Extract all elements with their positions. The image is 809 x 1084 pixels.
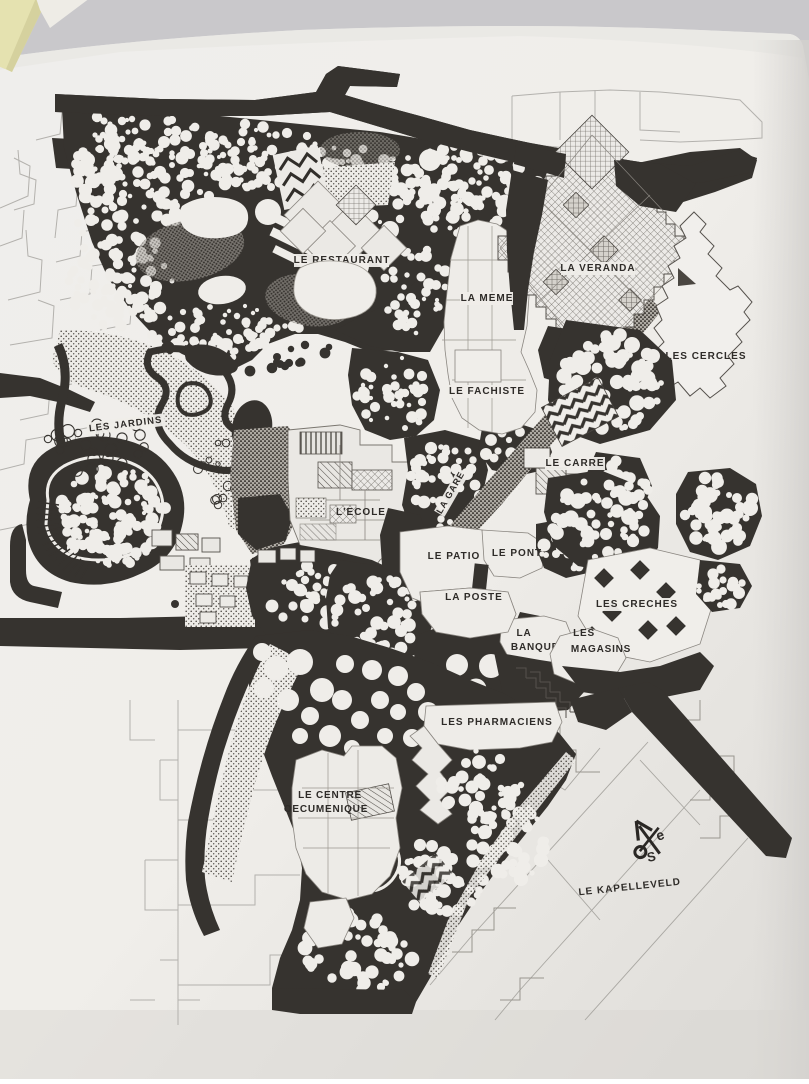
- svg-text:LA: LA: [517, 628, 532, 639]
- svg-text:LE CENTRE: LE CENTRE: [298, 790, 362, 801]
- svg-text:LE CARRE: LE CARRE: [545, 458, 604, 469]
- svg-text:LES: LES: [573, 628, 595, 639]
- svg-text:OECUMENIQUE: OECUMENIQUE: [284, 804, 368, 815]
- svg-text:LES PHARMACIENS: LES PHARMACIENS: [441, 717, 553, 728]
- svg-text:LA VERANDA: LA VERANDA: [560, 263, 635, 274]
- svg-text:MAGASINS: MAGASINS: [571, 644, 631, 655]
- svg-text:LA MEME: LA MEME: [461, 293, 514, 304]
- svg-text:LE PONT: LE PONT: [492, 548, 542, 559]
- svg-text:LES CERCLES: LES CERCLES: [665, 351, 746, 362]
- svg-text:L'ECOLE: L'ECOLE: [336, 507, 386, 518]
- svg-text:LE PATIO: LE PATIO: [428, 551, 481, 562]
- svg-text:LA POSTE: LA POSTE: [445, 592, 503, 603]
- svg-text:LE FACHISTE: LE FACHISTE: [449, 386, 525, 397]
- svg-text:LES CRECHES: LES CRECHES: [596, 599, 678, 610]
